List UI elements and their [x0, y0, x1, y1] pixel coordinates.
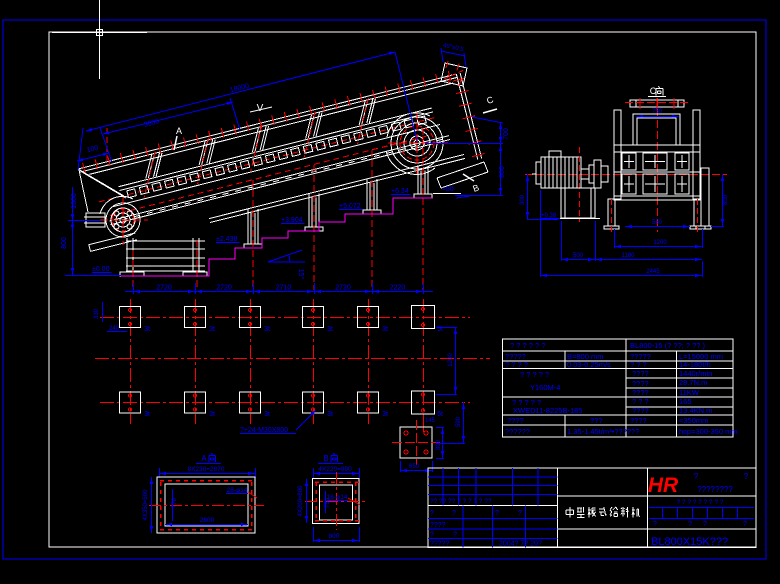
- svg-text:1.35-1.45t/m³•??????: 1.35-1.45t/m³•??????: [567, 427, 639, 436]
- svg-text:hcp=300-350 mm: hcp=300-350 mm: [679, 427, 738, 436]
- svg-text:3t: 3t: [327, 326, 333, 333]
- svg-text:500: 500: [573, 253, 584, 259]
- svg-text:2220: 2220: [390, 285, 406, 292]
- svg-text:BL800X15K???: BL800X15K???: [651, 536, 728, 548]
- svg-text:????: ????: [630, 416, 647, 425]
- svg-text:V: V: [257, 103, 264, 114]
- svg-text:+6.34: +6.34: [391, 188, 409, 195]
- svg-text:≈60: ≈60: [442, 186, 454, 193]
- svg-text:?: ?: [743, 521, 747, 528]
- svg-text:330: 330: [94, 308, 100, 319]
- svg-text:????: ????: [632, 406, 649, 415]
- svg-text:4X350=500: 4X350=500: [143, 489, 149, 521]
- svg-text:2445: 2445: [646, 269, 660, 275]
- svg-text:2720: 2720: [335, 285, 351, 292]
- svg-text:560: 560: [652, 220, 663, 226]
- svg-text:3t: 3t: [382, 411, 388, 418]
- svg-text:0.03-0.25m/s: 0.03-0.25m/s: [567, 360, 611, 369]
- svg-text:3t: 3t: [209, 411, 215, 418]
- svg-text:?: ?: [430, 510, 434, 517]
- svg-text:14-180t/h: 14-180t/h: [679, 360, 711, 369]
- svg-text:?: ?: [518, 510, 522, 517]
- svg-text:±2.438: ±2.438: [216, 236, 237, 243]
- svg-text:??????: ??????: [505, 427, 530, 436]
- svg-text:240: 240: [109, 326, 120, 332]
- svg-text:?: ?: [694, 472, 699, 481]
- svg-text:?: ?: [453, 532, 457, 539]
- svg-text:8X230=2870: 8X230=2870: [187, 466, 224, 473]
- svg-text:?: ?: [688, 521, 692, 528]
- svg-text:B: B: [323, 454, 328, 463]
- svg-text:? ? ? ? ?: ? ? ? ? ?: [520, 370, 549, 379]
- svg-text:5t: 5t: [437, 411, 443, 418]
- svg-text:?: ?: [653, 521, 657, 528]
- svg-text:?????: ?????: [430, 541, 450, 548]
- svg-text:????: ????: [507, 416, 524, 425]
- svg-text:? ? ?: ? ? ?: [630, 360, 647, 369]
- svg-text:2800: 2800: [200, 517, 215, 524]
- svg-text:? ? ? ? ? ? ? ? ?: ? ? ? ? ? ? ? ? ?: [677, 499, 724, 506]
- svg-text:A: A: [201, 454, 207, 463]
- svg-text:?+24-M30X800: ?+24-M30X800: [240, 427, 288, 434]
- svg-text:+3.904: +3.904: [281, 217, 303, 224]
- svg-text:? ? ?: ? ? ?: [632, 397, 649, 406]
- svg-text:11KW: 11KW: [679, 388, 700, 397]
- svg-text:3t: 3t: [327, 411, 333, 418]
- svg-text:3t: 3t: [382, 326, 388, 333]
- svg-text:1440r/min: 1440r/min: [679, 369, 712, 378]
- svg-text:1200: 1200: [653, 240, 667, 246]
- svg-text:?: ?: [430, 532, 434, 539]
- svg-text:800: 800: [499, 166, 506, 178]
- svg-text:2004? 7? 20?: 2004? 7? 20?: [499, 541, 542, 548]
- svg-text:15°: 15°: [297, 269, 305, 280]
- svg-text:1500: 1500: [71, 193, 78, 209]
- svg-text:?: ?: [495, 510, 499, 517]
- svg-text:3t: 3t: [264, 326, 270, 333]
- svg-text:A: A: [176, 126, 182, 136]
- svg-text:3t: 3t: [144, 326, 150, 333]
- svg-text:?: ?: [452, 510, 456, 517]
- svg-text:145: 145: [425, 418, 436, 424]
- svg-text:????: ????: [632, 379, 649, 388]
- svg-text:28-φ14: 28-φ14: [227, 487, 248, 494]
- svg-text:4X220=880: 4X220=880: [318, 466, 352, 473]
- svg-text:4X200=800: 4X200=800: [298, 485, 304, 517]
- svg-text:BL800-15 (? ??; ? ?? ): BL800-15 (? ??; ? ?? ): [630, 341, 706, 350]
- svg-text:165: 165: [679, 397, 692, 406]
- svg-text:? ? ? ? ? ?: ? ? ? ? ? ?: [510, 341, 545, 350]
- svg-text:800: 800: [723, 194, 729, 205]
- svg-text:13.4KN.m: 13.4KN.m: [679, 406, 712, 415]
- svg-text:28.7N.m: 28.7N.m: [679, 378, 707, 387]
- svg-text:3t: 3t: [264, 411, 270, 418]
- svg-text:300: 300: [520, 194, 526, 205]
- svg-text:3t: 3t: [209, 326, 215, 333]
- svg-text:?? ?? ?? ? ? ? ? ? ??: ?? ?? ?? ? ? ? ? ? ??: [430, 498, 492, 505]
- svg-text:590: 590: [456, 416, 462, 427]
- svg-text:770: 770: [172, 497, 178, 508]
- svg-text:2710: 2710: [276, 285, 292, 292]
- svg-text:XWED11-8225B-185: XWED11-8225B-185: [513, 406, 582, 415]
- svg-text:+5.072: +5.072: [339, 203, 361, 210]
- svg-text:? ? ? ?: ? ? ? ?: [505, 360, 528, 369]
- svg-text:800: 800: [436, 439, 442, 450]
- svg-text:?: ?: [744, 472, 749, 481]
- svg-text:700: 700: [503, 128, 510, 140]
- svg-text:????: ????: [632, 388, 649, 397]
- svg-text:<350mm: <350mm: [679, 416, 708, 425]
- svg-text:HR: HR: [648, 474, 679, 497]
- svg-text:1180: 1180: [622, 253, 636, 259]
- svg-text:???: ???: [590, 416, 603, 425]
- svg-text:750: 750: [325, 497, 331, 508]
- svg-text:650: 650: [409, 464, 420, 470]
- svg-text:????: ????: [430, 522, 446, 529]
- svg-text:Y160M-4: Y160M-4: [530, 383, 560, 392]
- svg-text:3t: 3t: [144, 411, 150, 418]
- svg-text:1200: 1200: [448, 353, 454, 367]
- svg-text:800: 800: [61, 237, 68, 249]
- svg-text:2720: 2720: [216, 285, 232, 292]
- svg-text:±0.00: ±0.00: [92, 266, 110, 273]
- svg-text:800: 800: [329, 533, 340, 540]
- svg-text:????: ????: [632, 369, 649, 378]
- svg-text:?: ?: [703, 521, 707, 528]
- svg-text:????????: ????????: [697, 485, 733, 494]
- svg-text:2720: 2720: [156, 285, 172, 292]
